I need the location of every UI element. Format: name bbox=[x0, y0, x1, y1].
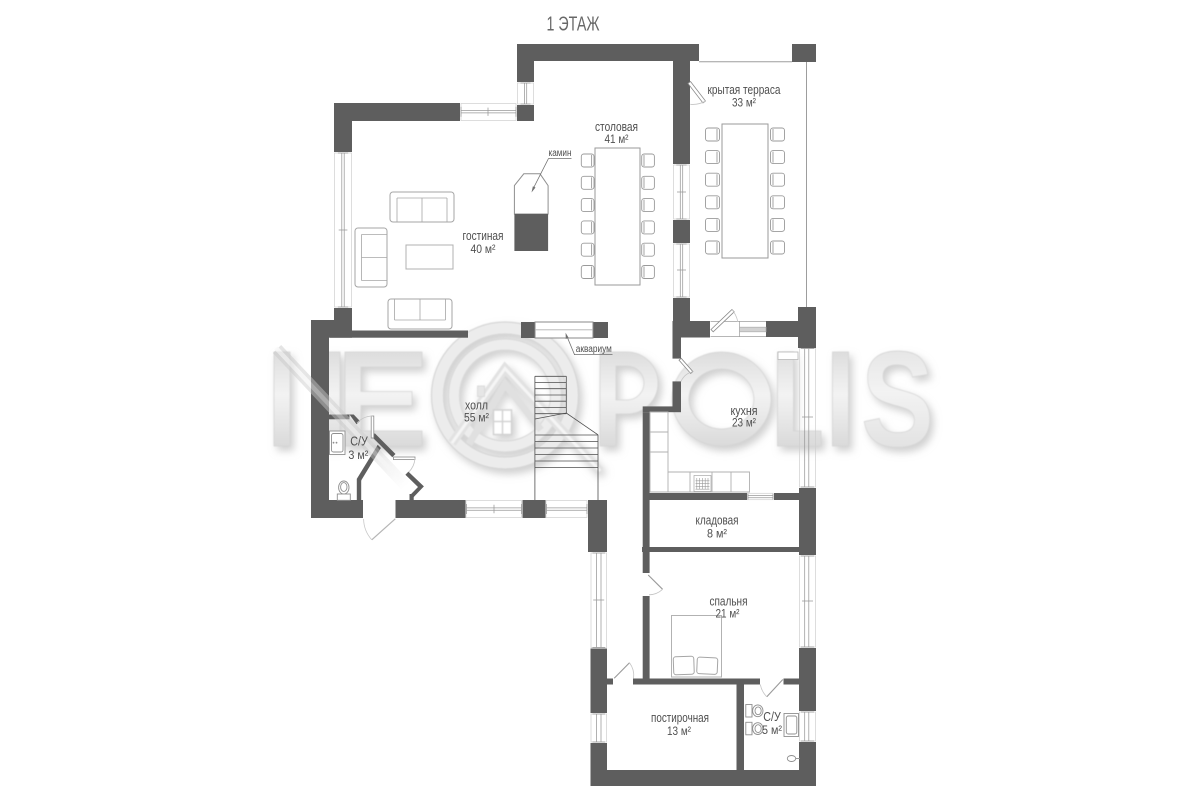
svg-text:S: S bbox=[861, 323, 934, 475]
svg-text:8 м²: 8 м² bbox=[707, 527, 727, 541]
svg-text:гостиная: гостиная bbox=[463, 229, 504, 243]
svg-text:С/У: С/У bbox=[763, 710, 781, 724]
svg-text:55 м²: 55 м² bbox=[464, 411, 489, 425]
svg-text:С/У: С/У bbox=[350, 435, 368, 449]
svg-text:3 м²: 3 м² bbox=[348, 448, 368, 462]
svg-text:5 м²: 5 м² bbox=[762, 723, 782, 737]
svg-text:1 ЭТАЖ: 1 ЭТАЖ bbox=[547, 13, 600, 36]
svg-text:постирочная: постирочная bbox=[651, 711, 709, 725]
svg-text:камин: камин bbox=[549, 148, 572, 159]
svg-text:23 м²: 23 м² bbox=[732, 416, 756, 430]
svg-text:кладовая: кладовая bbox=[696, 514, 739, 528]
svg-text:21 м²: 21 м² bbox=[716, 607, 740, 621]
svg-text:40 м²: 40 м² bbox=[471, 242, 496, 256]
svg-text:41 м²: 41 м² bbox=[605, 132, 629, 146]
svg-text:33 м²: 33 м² bbox=[732, 96, 756, 110]
svg-text:13 м²: 13 м² bbox=[667, 724, 691, 738]
svg-text:аквариум: аквариум bbox=[576, 344, 612, 355]
